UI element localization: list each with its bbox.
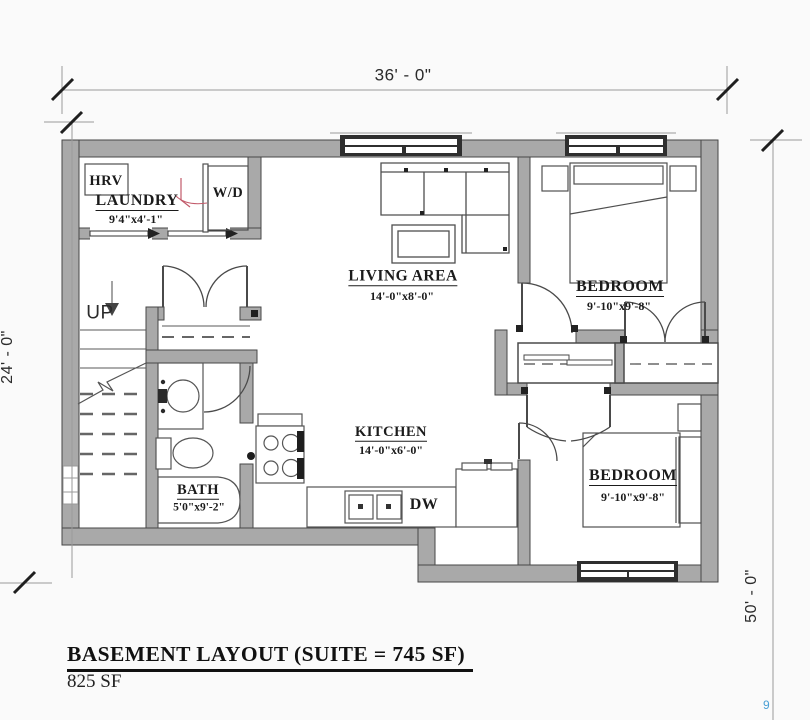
bedroom2-label: BEDROOM: [589, 468, 677, 486]
dimension-right-label: 50' - 0": [744, 569, 760, 623]
toilet-tank-icon: [156, 438, 171, 469]
living-area-label: LIVING AREA: [348, 268, 457, 286]
dimension-left-label: 24' - 0": [0, 330, 16, 384]
plan-total-area: 825 SF: [67, 671, 121, 693]
sink-icon: [167, 380, 199, 412]
toilet-bowl-icon: [173, 438, 213, 468]
laundry-room-dims: 9'4"x4'-1": [109, 213, 163, 225]
wd-label: W/D: [213, 186, 244, 201]
plan-title: BASEMENT LAYOUT (SUITE = 745 SF): [67, 642, 473, 672]
closets: [518, 343, 718, 383]
kitchen-dims: 14'-0"x6'-0": [359, 444, 423, 456]
floor-plan-drawing: [0, 0, 810, 720]
kitchen-label: KITCHEN: [355, 425, 427, 442]
dishwasher-label: DW: [410, 497, 439, 513]
bedroom2-dims: 9'-10"x9'-8": [601, 491, 665, 503]
living-area-dims: 14'-0"x8'-0": [370, 290, 434, 302]
laundry-room-label: LAUNDRY: [96, 193, 179, 211]
page-artifact-glyph: 9: [763, 698, 770, 712]
wd-door-icon: [203, 164, 208, 232]
bath-label: BATH: [177, 483, 219, 500]
bedroom1-label: BEDROOM: [576, 279, 664, 297]
hrv-label: HRV: [89, 174, 122, 189]
fridge-icon: [456, 469, 517, 527]
up-label: UP: [86, 304, 113, 323]
bedroom1-dims: 9'-10"x9'-8": [587, 300, 651, 312]
dimension-top-label: 36' - 0": [375, 67, 432, 84]
bath-dims: 5'0"x9'-2": [173, 502, 225, 514]
floor-plan: 36' - 0" 24' - 0" 50' - 0" HRV W/D LAUND…: [0, 0, 810, 720]
